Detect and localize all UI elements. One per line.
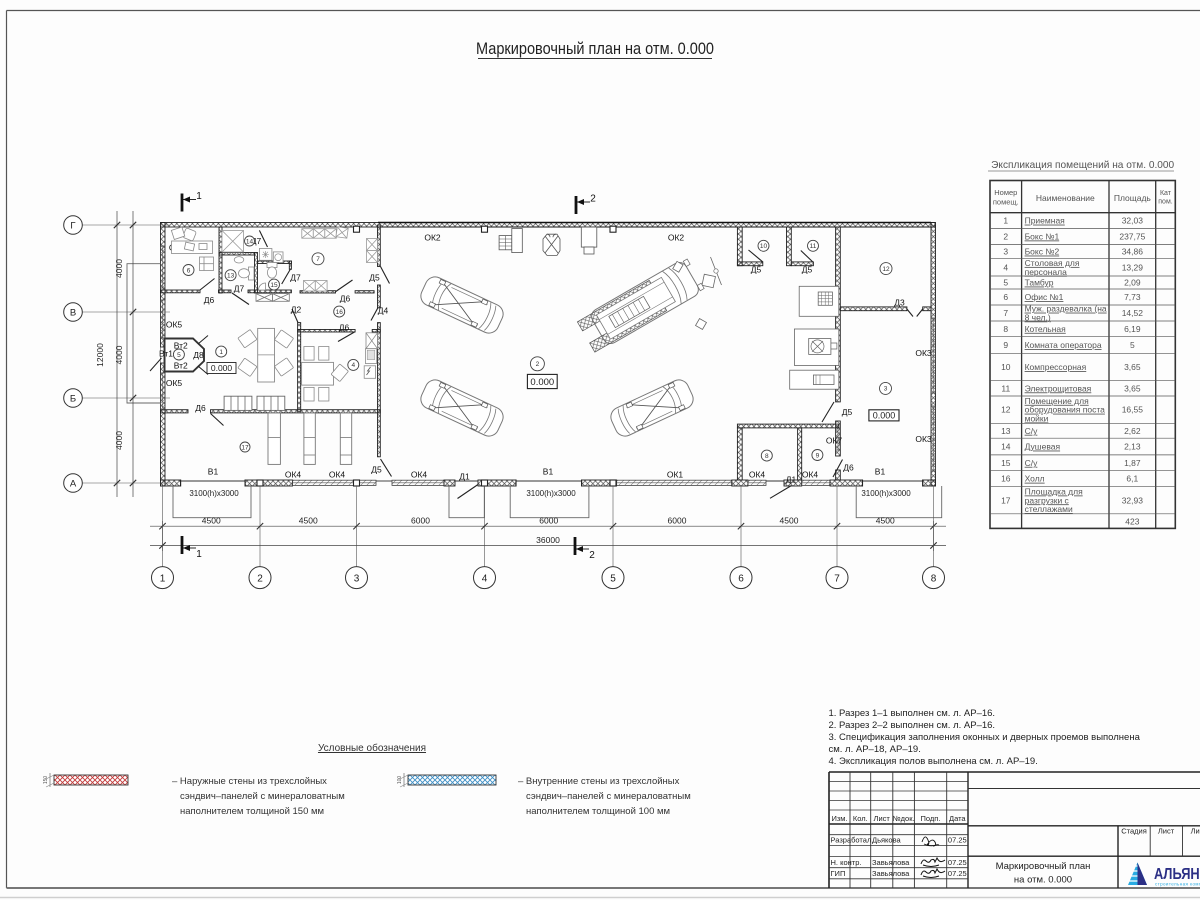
svg-text:6: 6 — [187, 267, 191, 274]
svg-text:пом.: пом. — [1158, 199, 1172, 206]
svg-text:наполнителем толщиной 100 мм: наполнителем толщиной 100 мм — [526, 806, 670, 817]
svg-text:ОК4: ОК4 — [802, 470, 819, 480]
svg-text:8: 8 — [1003, 324, 1008, 334]
svg-text:Холл: Холл — [1025, 474, 1045, 484]
svg-text:АЛЬЯНС: АЛЬЯНС — [1154, 866, 1200, 883]
svg-text:Завьялова: Завьялова — [872, 858, 910, 867]
svg-text:персонала: персонала — [1025, 267, 1068, 277]
svg-text:ОК4: ОК4 — [749, 470, 766, 480]
svg-text:Д3: Д3 — [894, 298, 905, 308]
svg-text:6000: 6000 — [539, 516, 558, 526]
svg-text:В1: В1 — [208, 467, 219, 477]
svg-text:Д5: Д5 — [842, 407, 853, 417]
svg-text:Д6: Д6 — [339, 323, 350, 333]
svg-text:Д8: Д8 — [193, 350, 204, 360]
svg-text:Бокс №2: Бокс №2 — [1025, 247, 1060, 257]
svg-text:4: 4 — [351, 362, 355, 369]
svg-text:С/у: С/у — [1025, 426, 1039, 436]
svg-text:Лист: Лист — [1158, 827, 1175, 836]
svg-text:Дата: Дата — [949, 814, 966, 823]
svg-text:Подп.: Подп. — [921, 814, 941, 823]
svg-text:Д1: Д1 — [786, 475, 797, 485]
svg-text:1: 1 — [1003, 216, 1008, 226]
svg-text:7: 7 — [316, 256, 320, 263]
svg-text:4500: 4500 — [202, 516, 221, 526]
svg-text:Экспликация помещений на отм.: Экспликация помещений на отм. 0.000 — [991, 159, 1174, 171]
svg-text:2: 2 — [589, 550, 595, 561]
svg-text:Тамбур: Тамбур — [1025, 278, 1054, 288]
svg-text:2: 2 — [590, 194, 596, 205]
svg-text:6: 6 — [1003, 292, 1008, 302]
svg-text:0.000: 0.000 — [211, 363, 233, 373]
svg-text:3: 3 — [354, 573, 360, 584]
svg-text:стеллажами: стеллажами — [1025, 504, 1073, 514]
svg-text:Д5: Д5 — [369, 273, 380, 283]
svg-text:Вт2: Вт2 — [174, 361, 188, 371]
svg-text:16: 16 — [1001, 474, 1011, 484]
svg-text:Кат: Кат — [1160, 190, 1172, 197]
svg-text:Д4: Д4 — [378, 306, 389, 316]
svg-text:В1: В1 — [875, 467, 886, 477]
svg-text:4. Экспликация полов выполнена: 4. Экспликация полов выполнена см. л. АР… — [829, 756, 1038, 767]
svg-text:помещ.: помещ. — [993, 198, 1019, 207]
svg-text:4000: 4000 — [114, 431, 124, 450]
svg-text:16: 16 — [336, 309, 344, 316]
svg-text:ОК1: ОК1 — [667, 470, 684, 480]
svg-text:9: 9 — [1003, 340, 1008, 350]
svg-text:Д6: Д6 — [843, 463, 854, 473]
svg-text:12000: 12000 — [95, 343, 105, 367]
svg-text:Вт1: Вт1 — [159, 349, 173, 359]
svg-text:Лист: Лист — [874, 814, 891, 823]
svg-text:15: 15 — [1001, 458, 1011, 468]
svg-text:Д7: Д7 — [234, 284, 245, 294]
svg-text:ОК5: ОК5 — [166, 320, 183, 330]
svg-text:2,62: 2,62 — [1124, 426, 1141, 436]
svg-text:3: 3 — [1003, 247, 1008, 257]
svg-text:07.25: 07.25 — [948, 869, 967, 878]
svg-text:Д1: Д1 — [459, 472, 470, 482]
svg-text:1. Разрез 1–1 выполнен см. л.: 1. Разрез 1–1 выполнен см. л. АР–16. — [829, 708, 996, 719]
svg-text:07.25: 07.25 — [948, 858, 967, 867]
svg-text:Изм.: Изм. — [831, 814, 847, 823]
svg-text:4500: 4500 — [876, 516, 895, 526]
svg-text:5: 5 — [1003, 278, 1008, 288]
svg-text:Разработал: Разработал — [831, 836, 872, 845]
svg-text:32,03: 32,03 — [1122, 216, 1144, 226]
svg-text:Приемная: Приемная — [1025, 216, 1066, 226]
svg-text:8 чел.): 8 чел.) — [1025, 312, 1051, 322]
svg-text:2: 2 — [536, 361, 540, 368]
svg-text:3: 3 — [884, 386, 888, 393]
svg-text:5: 5 — [610, 573, 616, 584]
svg-text:С/у: С/у — [1025, 458, 1039, 468]
svg-text:сэндвич–панелей с минераловатн: сэндвич–панелей с минераловатным — [180, 791, 345, 802]
svg-text:2,09: 2,09 — [1124, 278, 1141, 288]
svg-text:3100(h)х3000: 3100(h)х3000 — [526, 489, 576, 498]
svg-text:2: 2 — [257, 573, 263, 584]
svg-text:7: 7 — [1003, 308, 1008, 318]
svg-text:ОК2: ОК2 — [424, 233, 441, 243]
svg-text:3,65: 3,65 — [1124, 383, 1141, 393]
svg-text:17: 17 — [1001, 495, 1011, 505]
svg-text:Наименование: Наименование — [1036, 193, 1095, 203]
svg-text:– Внутренние стены из трехслой: – Внутренние стены из трехслойных — [518, 776, 680, 787]
svg-text:8: 8 — [931, 573, 937, 584]
svg-text:14: 14 — [1001, 442, 1011, 452]
svg-text:ОК3: ОК3 — [915, 434, 932, 444]
svg-text:Д2: Д2 — [291, 305, 302, 315]
svg-text:13: 13 — [1001, 426, 1011, 436]
svg-text:2. Разрез 2–2 выполнен см. л.: 2. Разрез 2–2 выполнен см. л. АР–16. — [829, 720, 996, 731]
svg-text:ОК4: ОК4 — [285, 470, 302, 480]
svg-text:Электрощитовая: Электрощитовая — [1025, 383, 1092, 393]
svg-text:0.000: 0.000 — [530, 377, 554, 388]
svg-text:13: 13 — [227, 273, 235, 280]
svg-text:100: 100 — [397, 776, 403, 785]
svg-text:6,19: 6,19 — [1124, 324, 1141, 334]
svg-text:3,65: 3,65 — [1124, 362, 1141, 372]
svg-text:4000: 4000 — [114, 259, 124, 278]
svg-text:Г: Г — [70, 220, 75, 231]
svg-text:6000: 6000 — [411, 516, 430, 526]
svg-text:В1: В1 — [543, 467, 554, 477]
svg-text:– Наружные стены из трехслойны: – Наружные стены из трехслойных — [172, 776, 327, 787]
svg-text:9: 9 — [816, 452, 820, 459]
svg-text:Площадь: Площадь — [1114, 193, 1152, 203]
svg-text:11: 11 — [1001, 383, 1010, 393]
svg-text:А: А — [70, 478, 77, 489]
svg-text:1: 1 — [196, 191, 202, 202]
svg-text:17: 17 — [241, 444, 249, 451]
svg-text:4000: 4000 — [114, 345, 124, 364]
svg-text:см. л. АР–18, АР–19.: см. л. АР–18, АР–19. — [829, 744, 921, 755]
svg-text:Кол.: Кол. — [853, 814, 868, 823]
svg-text:150: 150 — [43, 776, 49, 785]
svg-text:Завьялова: Завьялова — [872, 869, 910, 878]
svg-text:Д6: Д6 — [195, 403, 206, 413]
svg-text:15: 15 — [270, 282, 278, 289]
svg-text:ОК5: ОК5 — [166, 378, 183, 388]
svg-text:6: 6 — [738, 573, 744, 584]
svg-text:наполнителем толщиной 150 мм: наполнителем толщиной 150 мм — [180, 806, 324, 817]
svg-text:237,75: 237,75 — [1119, 231, 1145, 241]
svg-text:4: 4 — [482, 573, 488, 584]
svg-text:34,86: 34,86 — [1122, 247, 1144, 257]
svg-text:Компрессорная: Компрессорная — [1025, 362, 1087, 372]
svg-text:2: 2 — [1003, 231, 1008, 241]
svg-text:2,13: 2,13 — [1124, 442, 1141, 452]
svg-text:8: 8 — [765, 453, 769, 460]
svg-text:ОК7: ОК7 — [826, 436, 843, 446]
svg-text:Комната оператора: Комната оператора — [1025, 340, 1102, 350]
svg-text:Офис №1: Офис №1 — [1025, 292, 1064, 302]
svg-text:14: 14 — [246, 238, 254, 245]
svg-text:ОК4: ОК4 — [411, 470, 428, 480]
svg-text:Условные обозначения: Условные обозначения — [318, 742, 426, 754]
svg-text:1: 1 — [160, 573, 166, 584]
svg-text:32,93: 32,93 — [1122, 495, 1144, 505]
svg-text:Б: Б — [70, 393, 76, 404]
svg-text:4500: 4500 — [780, 516, 799, 526]
svg-text:№док.: №док. — [893, 814, 915, 823]
svg-text:12: 12 — [882, 266, 890, 273]
svg-text:13,29: 13,29 — [1122, 262, 1144, 272]
svg-text:Бокс №1: Бокс №1 — [1025, 231, 1060, 241]
svg-text:сэндвич–панелей с минераловатн: сэндвич–панелей с минераловатным — [526, 791, 691, 802]
svg-text:0.000: 0.000 — [873, 411, 896, 421]
svg-text:Дьякова: Дьякова — [872, 836, 901, 845]
svg-text:10: 10 — [1001, 362, 1011, 372]
svg-text:07.25: 07.25 — [948, 836, 967, 845]
svg-text:4: 4 — [1003, 262, 1008, 272]
svg-text:Номер: Номер — [994, 188, 1017, 197]
svg-text:5: 5 — [177, 352, 181, 359]
svg-text:В: В — [70, 307, 76, 318]
svg-text:7,73: 7,73 — [1124, 292, 1141, 302]
svg-text:4500: 4500 — [299, 516, 318, 526]
svg-text:1: 1 — [196, 549, 202, 560]
svg-text:Стадия: Стадия — [1121, 827, 1147, 836]
svg-text:строительная комп: строительная комп — [1155, 882, 1200, 887]
svg-text:ОК3: ОК3 — [915, 348, 932, 358]
svg-text:ОК2: ОК2 — [668, 233, 685, 243]
svg-text:1,87: 1,87 — [1124, 458, 1141, 468]
svg-text:10: 10 — [760, 243, 768, 250]
svg-text:Н. контр.: Н. контр. — [831, 858, 862, 867]
svg-text:Котельная: Котельная — [1025, 324, 1067, 334]
svg-text:3100(h)х3000: 3100(h)х3000 — [861, 489, 911, 498]
svg-text:3. Спецификация заполнения око: 3. Спецификация заполнения оконных и две… — [829, 732, 1141, 743]
svg-text:Д5: Д5 — [751, 265, 762, 275]
svg-text:16,55: 16,55 — [1122, 405, 1144, 415]
svg-text:11: 11 — [810, 243, 817, 250]
svg-text:36000: 36000 — [536, 535, 560, 545]
svg-text:мойки: мойки — [1025, 413, 1049, 423]
svg-text:1: 1 — [219, 349, 223, 356]
svg-text:Маркировочный план: Маркировочный план — [996, 861, 1091, 872]
svg-text:ОК4: ОК4 — [329, 470, 346, 480]
svg-text:Д7: Д7 — [290, 273, 301, 283]
svg-text:Д5: Д5 — [371, 465, 382, 475]
svg-text:Душевая: Душевая — [1025, 442, 1061, 452]
svg-text:5: 5 — [1130, 340, 1135, 350]
svg-text:6000: 6000 — [668, 516, 687, 526]
svg-text:Маркировочный план на отм. 0.0: Маркировочный план на отм. 0.000 — [476, 40, 714, 58]
svg-text:на отм. 0.000: на отм. 0.000 — [1014, 875, 1072, 886]
svg-text:Д5: Д5 — [802, 265, 813, 275]
svg-text:Лис: Лис — [1191, 827, 1200, 836]
svg-text:7: 7 — [834, 573, 840, 584]
svg-text:14,52: 14,52 — [1122, 308, 1144, 318]
svg-text:Д6: Д6 — [340, 294, 351, 304]
svg-text:423: 423 — [1125, 516, 1139, 526]
svg-text:12: 12 — [1001, 405, 1011, 415]
svg-text:Д6: Д6 — [204, 295, 215, 305]
svg-text:3100(h)х3000: 3100(h)х3000 — [189, 489, 239, 498]
svg-text:ГИП: ГИП — [831, 869, 846, 878]
svg-text:6,1: 6,1 — [1126, 474, 1138, 484]
